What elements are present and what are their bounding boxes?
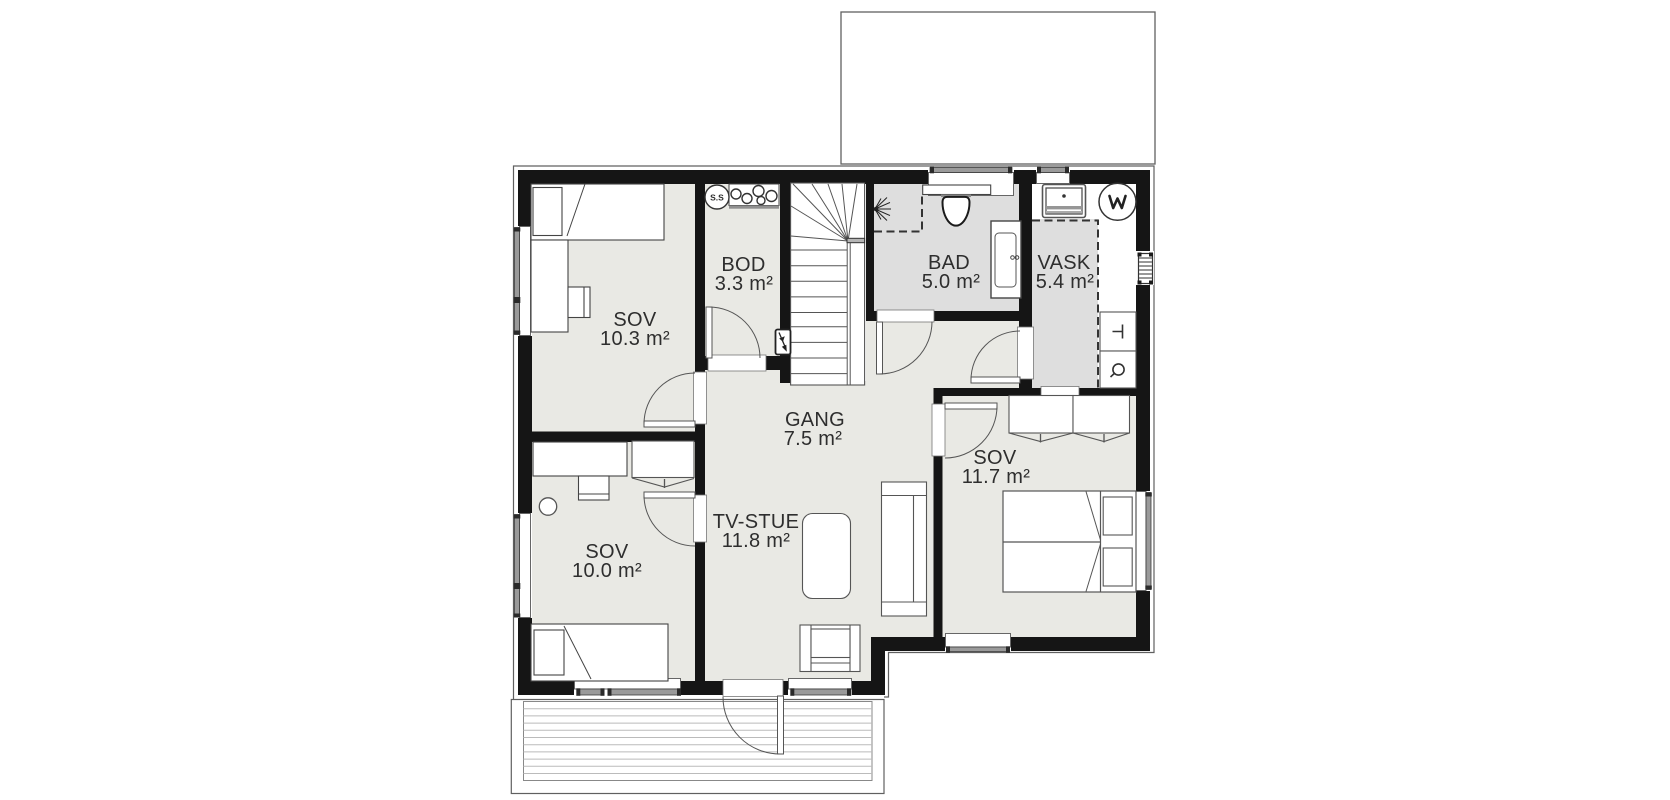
svg-text:11.7 m²: 11.7 m²	[962, 466, 1030, 488]
svg-text:11.8 m²: 11.8 m²	[722, 530, 790, 552]
svg-text:S.S: S.S	[710, 193, 724, 203]
svg-text:3.3 m²: 3.3 m²	[715, 273, 774, 295]
svg-text:10.0 m²: 10.0 m²	[572, 560, 642, 582]
svg-text:7.5 m²: 7.5 m²	[784, 428, 843, 450]
svg-text:10.3 m²: 10.3 m²	[600, 328, 670, 350]
svg-text:5.4 m²: 5.4 m²	[1036, 271, 1095, 293]
svg-text:5.0 m²: 5.0 m²	[922, 271, 981, 293]
